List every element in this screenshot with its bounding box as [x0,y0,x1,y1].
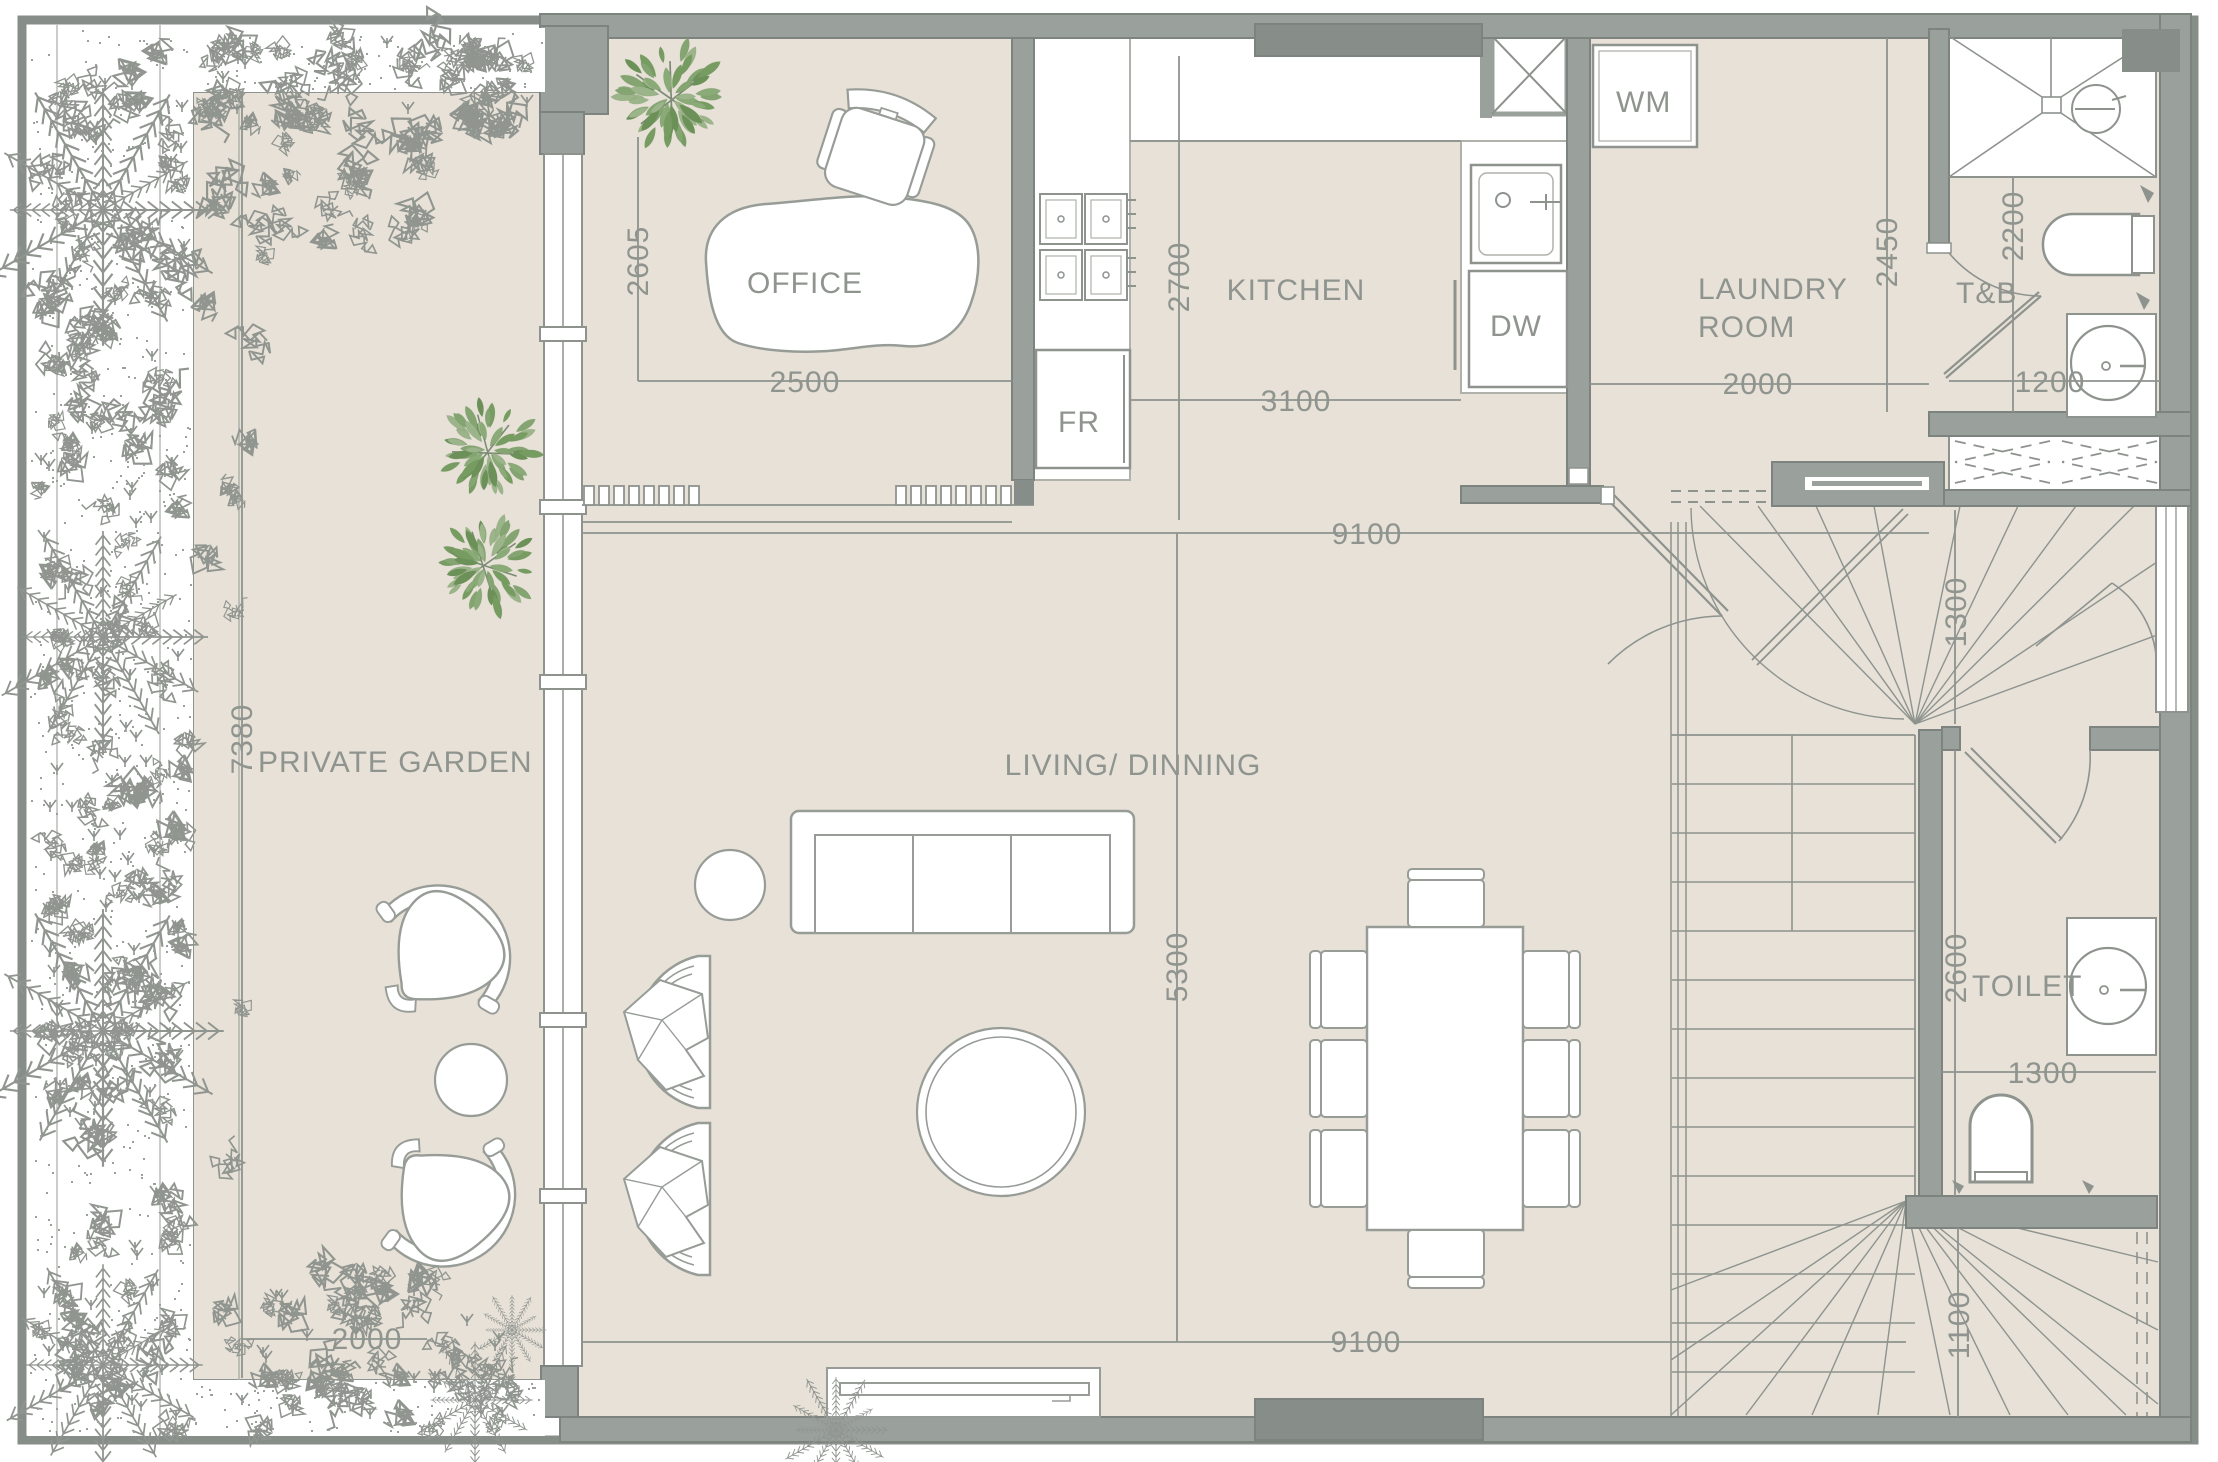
svg-text:WM: WM [1616,86,1671,119]
svg-text:KITCHEN: KITCHEN [1227,274,1366,307]
svg-text:2600: 2600 [1940,933,1973,1004]
svg-text:1300: 1300 [1940,577,1973,648]
svg-text:2200: 2200 [1997,191,2030,262]
svg-text:TOILET: TOILET [1972,970,2082,1003]
svg-text:5300: 5300 [1161,932,1194,1003]
svg-text:LIVING/ DINNING: LIVING/ DINNING [1005,749,1262,782]
svg-text:9100: 9100 [1331,1326,1402,1359]
svg-text:FR: FR [1058,406,1100,439]
svg-text:1200: 1200 [2015,366,2086,399]
svg-text:2500: 2500 [770,366,841,399]
svg-text:1300: 1300 [2008,1057,2079,1090]
svg-text:ROOM: ROOM [1698,311,1795,344]
svg-text:2450: 2450 [1871,217,1904,288]
svg-text:9100: 9100 [1332,518,1403,551]
svg-text:1100: 1100 [1943,1291,1976,1360]
svg-text:LAUNDRY: LAUNDRY [1698,273,1848,306]
svg-text:2000: 2000 [332,1323,403,1356]
svg-text:2000: 2000 [1723,368,1794,401]
svg-text:DW: DW [1490,310,1542,343]
svg-text:3100: 3100 [1261,385,1332,418]
svg-text:7380: 7380 [226,704,259,775]
svg-text:2605: 2605 [622,226,655,297]
svg-text:PRIVATE GARDEN: PRIVATE GARDEN [258,746,533,779]
svg-text:T&B: T&B [1956,277,2017,310]
svg-text:OFFICE: OFFICE [747,267,863,300]
svg-text:2700: 2700 [1163,242,1196,313]
